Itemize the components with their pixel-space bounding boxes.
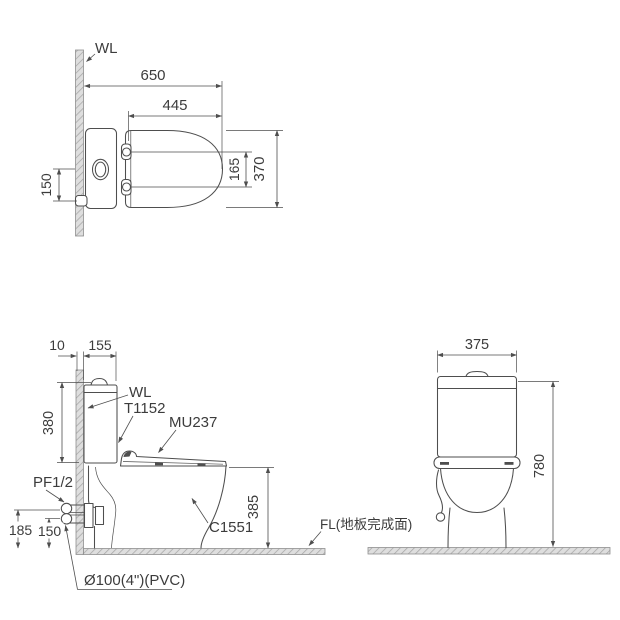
side-inlet-fitting	[96, 507, 104, 525]
side-dim-155: 155	[88, 337, 112, 353]
bowl-model-label: C1551	[209, 519, 253, 536]
front-floor-section	[368, 548, 610, 555]
fl-leader	[309, 532, 321, 546]
top-dim-445: 445	[162, 97, 187, 114]
top-wall-line-label: WL	[95, 40, 118, 57]
mu237-leader	[159, 430, 177, 453]
side-dim-150: 150	[38, 523, 62, 539]
top-dim-650: 650	[140, 67, 165, 84]
top-tank-outline	[86, 129, 117, 209]
side-supply-pipe-upper	[61, 503, 71, 513]
front-dim-780: 780	[532, 454, 548, 478]
wl-leader-top	[87, 54, 96, 62]
side-supply-pipe-lower	[61, 514, 71, 524]
pf12-leader	[46, 490, 64, 502]
side-dim-10: 10	[49, 337, 65, 353]
top-view: WL 650 445 150 165 370	[38, 40, 283, 236]
outlet-pipe-label: Ø100(4")(PVC)	[84, 572, 185, 589]
top-dim-370: 370	[251, 156, 268, 181]
side-seat-bumper-2	[198, 463, 206, 466]
front-dim-375: 375	[465, 337, 489, 353]
floor-level-label: FL(地板完成面)	[320, 517, 412, 532]
top-hinge-bolt-left	[123, 148, 131, 156]
front-flush-button	[466, 372, 488, 377]
side-view: 10 155 380 WL T1152 MU237 PF1/2 185 150 …	[7, 337, 413, 590]
seat-model-label: MU237	[169, 414, 217, 431]
top-hinge-bolt-right	[123, 183, 131, 191]
front-pedestal-right	[504, 508, 506, 548]
technical-drawing-page: WL 650 445 150 165 370	[0, 0, 620, 620]
toilet-installation-drawing: WL 650 445 150 165 370	[0, 0, 620, 620]
side-flush-button	[91, 379, 108, 386]
front-pedestal-left	[448, 508, 450, 548]
tank-model-label: T1152	[124, 400, 165, 417]
front-trip-lever-knob	[436, 513, 444, 521]
supply-connection-label: PF1/2	[33, 474, 73, 491]
front-bowl-outline	[441, 469, 514, 513]
c1551-leader	[192, 499, 208, 524]
front-hinge-left	[440, 462, 449, 465]
side-dim-380: 380	[41, 411, 57, 435]
top-seat-outline	[126, 131, 223, 208]
t1152-leader	[119, 416, 134, 443]
front-hinge-right	[505, 462, 514, 465]
side-floor-section	[84, 549, 326, 555]
side-inlet-valve	[85, 504, 94, 528]
side-tank-outline	[84, 385, 117, 463]
top-supply-stub	[76, 196, 88, 207]
top-wall-section	[76, 50, 84, 236]
top-dim-150: 150	[38, 173, 54, 197]
side-wall-line-label: WL	[129, 384, 152, 401]
side-seat-bumper-1	[155, 463, 163, 466]
top-dim-165: 165	[226, 158, 242, 182]
side-dim-185: 185	[9, 522, 33, 538]
side-dim-385: 385	[246, 495, 262, 519]
